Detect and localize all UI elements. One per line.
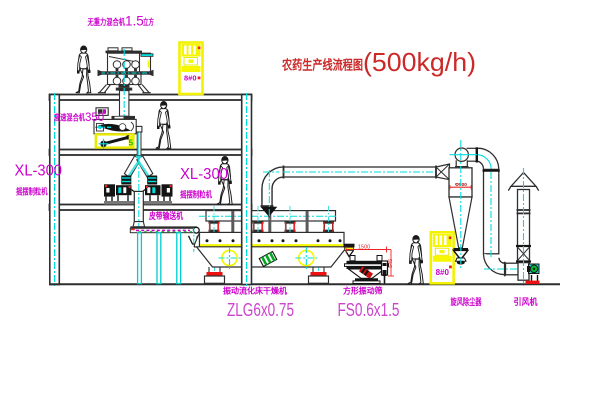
svg-text:无重力混合机: 无重力混合机: [87, 17, 126, 27]
svg-text:引风机: 引风机: [514, 296, 538, 307]
svg-text:1500: 1500: [358, 245, 370, 251]
svg-text:5: 5: [129, 139, 134, 148]
svg-text:ZLG6x0.75: ZLG6x0.75: [227, 300, 294, 320]
svg-text:350: 350: [85, 112, 104, 124]
svg-text:旋风除尘器: 旋风除尘器: [450, 296, 482, 307]
svg-text:摇摆制粒机: 摇摆制粒机: [16, 187, 48, 197]
svg-text:方形振动筛: 方形振动筛: [343, 286, 383, 296]
svg-text:皮带输送机: 皮带输送机: [148, 210, 183, 221]
svg-text:XL-300: XL-300: [15, 163, 63, 180]
svg-text:高速混合机: 高速混合机: [54, 113, 85, 123]
svg-text:(500kg/h): (500kg/h): [363, 47, 476, 77]
svg-text:立方: 立方: [143, 17, 154, 27]
svg-text:XL-300: XL-300: [180, 166, 228, 183]
svg-text:8#0: 8#0: [184, 74, 197, 83]
svg-text:农药生产线流程图: 农药生产线流程图: [281, 58, 363, 73]
svg-text:1.5: 1.5: [125, 14, 144, 29]
svg-text:振动流化床干燥机: 振动流化床干燥机: [223, 286, 288, 296]
svg-text:8#0: 8#0: [436, 268, 450, 277]
svg-text:摇摆制粒机: 摇摆制粒机: [180, 190, 212, 200]
svg-text:FS0.6x1.5: FS0.6x1.5: [338, 300, 400, 320]
